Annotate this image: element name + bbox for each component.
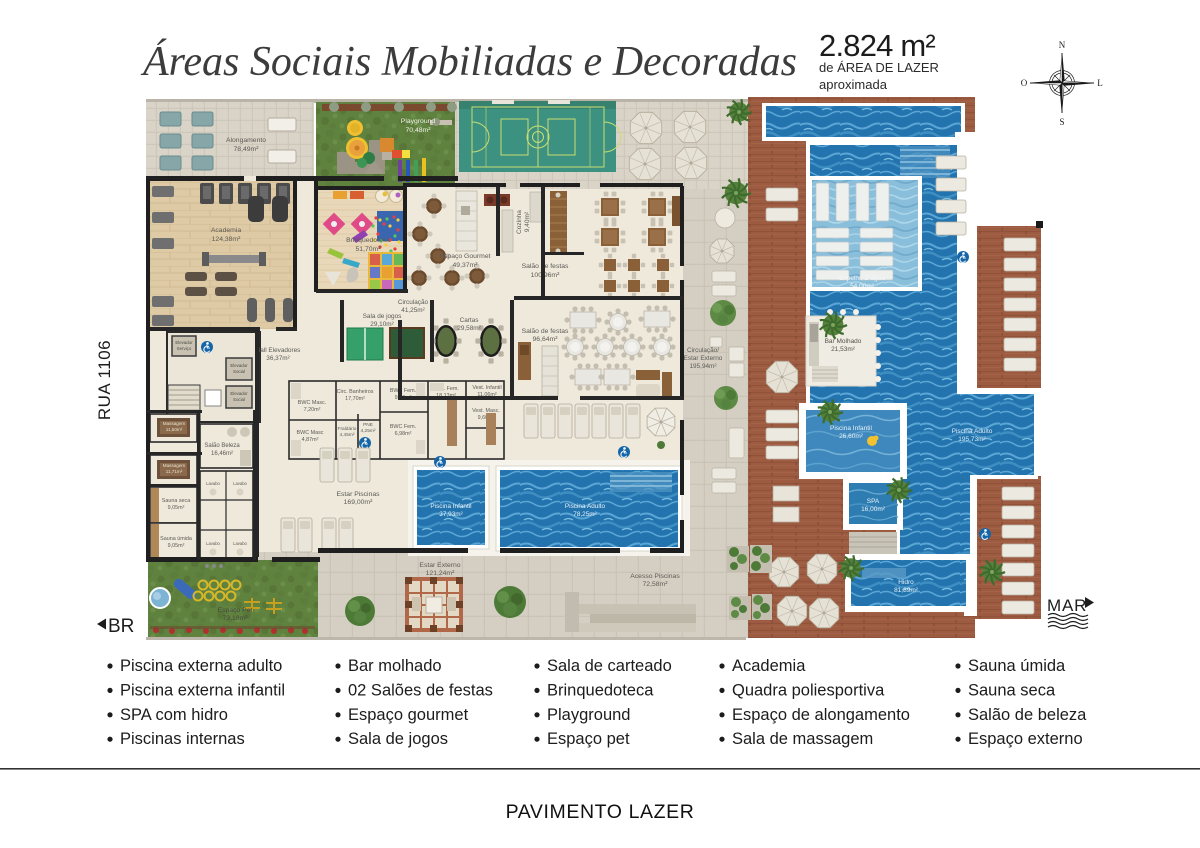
- svg-text:6,98m²: 6,98m²: [395, 431, 412, 437]
- svg-text:Espaço externo: Espaço externo: [968, 730, 1083, 748]
- svg-text:16,00m²: 16,00m²: [861, 506, 886, 513]
- svg-text:Sauna úmida: Sauna úmida: [160, 536, 192, 542]
- svg-text:4,45m²: 4,45m²: [340, 432, 355, 438]
- svg-text:PAVIMENTO LAZER: PAVIMENTO LAZER: [506, 801, 695, 823]
- svg-text:BWC Fem.: BWC Fem.: [390, 388, 416, 394]
- svg-text:Salão de festas: Salão de festas: [522, 328, 569, 335]
- svg-text:2.824 m²: 2.824 m²: [819, 28, 935, 63]
- svg-text:Academia: Academia: [211, 227, 241, 234]
- svg-text:Piscina Infantil: Piscina Infantil: [830, 425, 872, 432]
- svg-text:Social: Social: [233, 397, 245, 402]
- svg-text:Elevador: Elevador: [175, 340, 193, 345]
- svg-text:Sauna seca: Sauna seca: [968, 681, 1056, 699]
- svg-text:BWC Masc.: BWC Masc.: [298, 400, 326, 406]
- svg-text:29,58m²: 29,58m²: [457, 325, 480, 332]
- svg-text:Academia: Academia: [732, 657, 806, 675]
- svg-text:16,46m²: 16,46m²: [211, 451, 233, 457]
- svg-text:Serviço: Serviço: [177, 346, 192, 351]
- svg-text:Brinquedoteca: Brinquedoteca: [547, 681, 654, 699]
- svg-text:Elevador: Elevador: [230, 391, 248, 396]
- svg-text:Piscinas internas: Piscinas internas: [120, 730, 245, 748]
- svg-text:54,00m²: 54,00m²: [850, 283, 875, 290]
- svg-text:195,94m²: 195,94m²: [690, 363, 717, 370]
- svg-text:Lavabo: Lavabo: [233, 481, 247, 486]
- svg-text:Hall Elevadores: Hall Elevadores: [256, 347, 301, 354]
- svg-text:Espaço pet: Espaço pet: [547, 730, 630, 748]
- svg-text:11,50m²: 11,50m²: [166, 427, 183, 432]
- svg-text:9,40m²: 9,40m²: [524, 211, 531, 232]
- svg-text:Espaço Pet: Espaço Pet: [218, 607, 253, 614]
- svg-text:Sala de jogos: Sala de jogos: [348, 730, 448, 748]
- svg-text:51,70m²: 51,70m²: [356, 246, 382, 253]
- svg-text:21,53m²: 21,53m²: [831, 346, 856, 353]
- svg-text:BR: BR: [108, 616, 134, 637]
- svg-text:17,70m²: 17,70m²: [345, 396, 365, 402]
- svg-text:02 Salões de festas: 02 Salões de festas: [348, 681, 493, 699]
- svg-text:Bar molhado: Bar molhado: [348, 657, 442, 675]
- svg-text:Vest. Infantil: Vest. Infantil: [472, 385, 501, 391]
- svg-text:BWC Fem.: BWC Fem.: [390, 424, 416, 430]
- svg-text:Salão Beleza: Salão Beleza: [204, 443, 240, 449]
- svg-text:Espaço de alongamento: Espaço de alongamento: [732, 706, 910, 724]
- svg-text:SPA: SPA: [867, 498, 880, 505]
- svg-text:9,05m²: 9,05m²: [168, 543, 185, 549]
- svg-text:Circ. Banheiros: Circ. Banheiros: [337, 389, 374, 395]
- svg-text:Áreas Sociais Mobiliadas e Dec: Áreas Sociais Mobiliadas e Decoradas: [140, 38, 797, 85]
- svg-text:Lavabo: Lavabo: [233, 541, 247, 546]
- svg-text:S: S: [1059, 117, 1064, 127]
- svg-text:Espelho D'água: Espelho D'água: [839, 275, 885, 282]
- svg-text:26,60m²: 26,60m²: [839, 433, 864, 440]
- svg-text:Estar Externo: Estar Externo: [684, 355, 723, 362]
- svg-text:Piscina Adulto: Piscina Adulto: [952, 428, 993, 435]
- svg-text:4,87m²: 4,87m²: [302, 437, 319, 443]
- svg-text:Fraldário: Fraldário: [338, 426, 357, 432]
- svg-text:Circulação: Circulação: [398, 299, 429, 306]
- svg-text:L: L: [1097, 78, 1103, 88]
- svg-text:Quadra poliesportiva: Quadra poliesportiva: [732, 681, 885, 699]
- svg-text:Estar Externo: Estar Externo: [419, 562, 460, 569]
- svg-text:72,58m²: 72,58m²: [643, 581, 669, 588]
- svg-text:Sauna seca: Sauna seca: [162, 498, 190, 504]
- svg-text:121,24m²: 121,24m²: [426, 570, 455, 577]
- svg-text:Sala de jogos: Sala de jogos: [363, 313, 402, 320]
- svg-text:Piscina externa adulto: Piscina externa adulto: [120, 657, 282, 675]
- svg-text:7,20m²: 7,20m²: [304, 407, 321, 413]
- svg-text:PNE: PNE: [363, 422, 373, 428]
- svg-text:Social: Social: [233, 369, 245, 374]
- svg-text:SPA com hidro: SPA com hidro: [120, 706, 228, 724]
- svg-text:Salão de festas: Salão de festas: [522, 263, 569, 270]
- svg-text:Cozinha: Cozinha: [516, 210, 523, 234]
- svg-text:78,25m²: 78,25m²: [573, 511, 596, 518]
- svg-text:Cartas: Cartas: [460, 317, 479, 324]
- svg-text:Salão de beleza: Salão de beleza: [968, 706, 1087, 724]
- svg-text:Lavabo: Lavabo: [206, 541, 220, 546]
- svg-text:Espaço Gourmet: Espaço Gourmet: [440, 253, 491, 260]
- svg-text:de ÁREA DE LAZER: de ÁREA DE LAZER: [819, 60, 939, 75]
- svg-text:Massagem: Massagem: [163, 463, 186, 468]
- svg-text:Massagem: Massagem: [163, 421, 186, 426]
- svg-text:Piscina Infantil: Piscina Infantil: [430, 503, 471, 510]
- svg-text:Piscina externa infantil: Piscina externa infantil: [120, 681, 285, 699]
- svg-text:100,96m²: 100,96m²: [531, 272, 560, 279]
- svg-text:O: O: [1021, 78, 1028, 88]
- svg-text:Sauna úmida: Sauna úmida: [968, 657, 1066, 675]
- svg-text:37,93m²: 37,93m²: [439, 511, 462, 518]
- svg-text:169,00m²: 169,00m²: [344, 499, 373, 506]
- svg-text:70,48m²: 70,48m²: [406, 127, 432, 134]
- svg-text:Estar Piscinas: Estar Piscinas: [336, 491, 380, 498]
- svg-text:Alongamento: Alongamento: [226, 137, 266, 144]
- svg-text:9,05m²: 9,05m²: [168, 505, 185, 511]
- svg-text:Acesso Piscinas: Acesso Piscinas: [630, 573, 680, 580]
- svg-text:Espaço gourmet: Espaço gourmet: [348, 706, 469, 724]
- svg-text:124,38m²: 124,38m²: [212, 236, 241, 243]
- svg-text:Circulação/: Circulação/: [687, 347, 719, 354]
- svg-text:11,71m²: 11,71m²: [166, 469, 183, 474]
- svg-text:36,37m²: 36,37m²: [266, 355, 289, 362]
- svg-text:Playground: Playground: [401, 118, 436, 125]
- svg-text:Elevador: Elevador: [230, 363, 248, 368]
- svg-text:Lavabo: Lavabo: [206, 481, 220, 486]
- svg-text:81,89m²: 81,89m²: [894, 587, 919, 594]
- svg-text:49,37m²: 49,37m²: [453, 262, 479, 269]
- svg-text:Brinquedoteca: Brinquedoteca: [346, 237, 390, 244]
- svg-text:78,49m²: 78,49m²: [234, 146, 260, 153]
- svg-text:4,25m²: 4,25m²: [361, 428, 376, 434]
- svg-text:Sala de massagem: Sala de massagem: [732, 730, 873, 748]
- svg-text:Piscina Adulto: Piscina Adulto: [565, 503, 606, 510]
- svg-text:RUA 1106: RUA 1106: [95, 340, 114, 420]
- svg-text:Hidro: Hidro: [898, 579, 914, 586]
- svg-text:73,18m²: 73,18m²: [223, 615, 249, 622]
- svg-text:Playground: Playground: [547, 706, 630, 724]
- svg-text:29,10m²: 29,10m²: [370, 321, 393, 328]
- svg-text:Bar Molhado: Bar Molhado: [825, 338, 862, 345]
- svg-text:195,73m²: 195,73m²: [958, 436, 986, 443]
- svg-text:N: N: [1059, 40, 1066, 50]
- svg-text:41,25m²: 41,25m²: [401, 307, 424, 314]
- svg-text:Sala de carteado: Sala de carteado: [547, 657, 672, 675]
- svg-text:MAR: MAR: [1047, 596, 1087, 615]
- svg-text:aproximada: aproximada: [819, 77, 888, 92]
- svg-text:BWC Masc: BWC Masc: [297, 430, 324, 436]
- svg-text:96,64m²: 96,64m²: [533, 336, 559, 343]
